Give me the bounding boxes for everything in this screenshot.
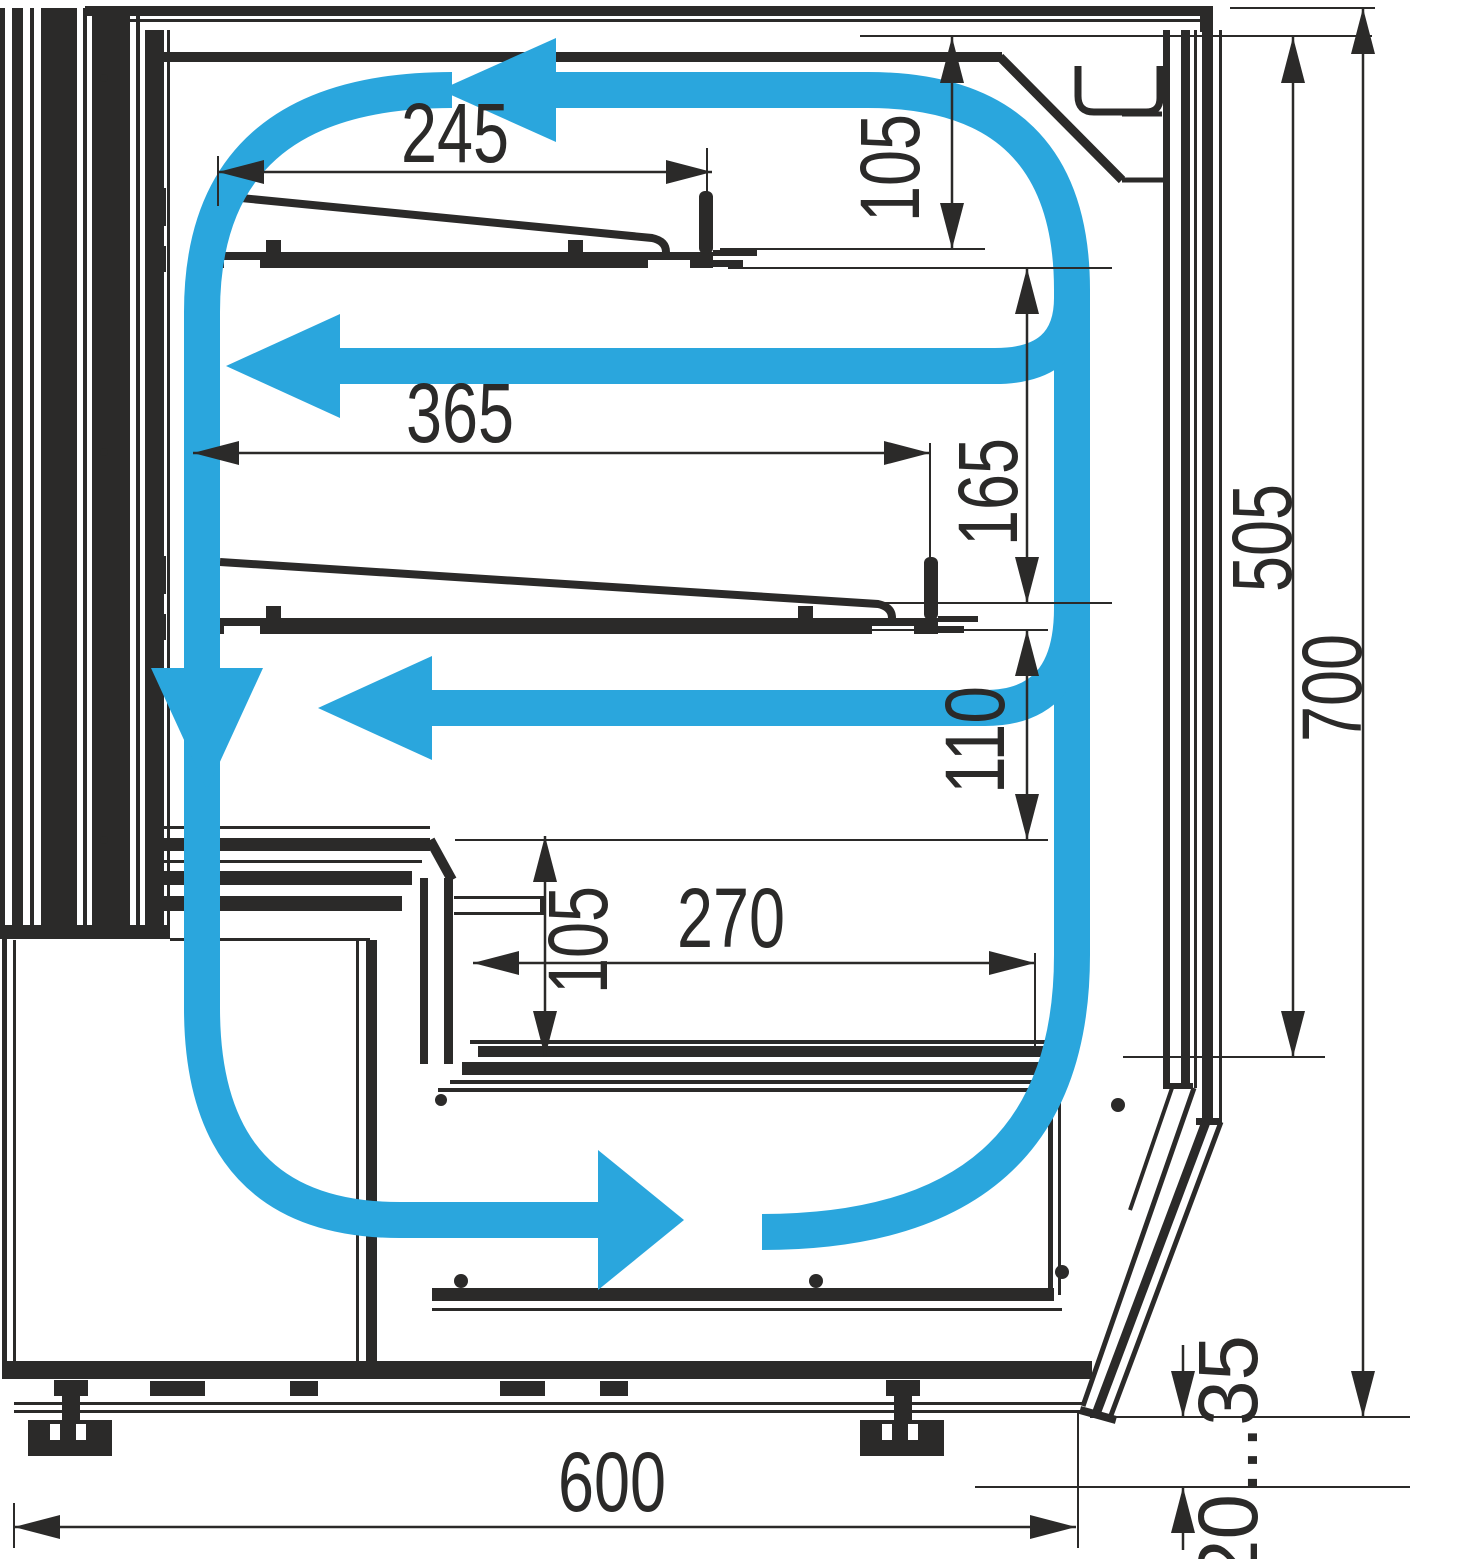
airflow-arrow-well-icon xyxy=(598,1150,684,1290)
airflow-arrow-middle-icon xyxy=(226,314,340,418)
dimension-label-110: 110 xyxy=(928,686,1022,794)
airflow xyxy=(151,38,1072,1290)
case-cross-section-diagram: 245 105 365 165 110 505 700 105 270 600 … xyxy=(0,0,1468,1559)
airflow-arrow-lower-icon xyxy=(318,656,432,760)
dimension-labels: 245 105 365 165 110 505 700 105 270 600 … xyxy=(401,86,1379,1559)
dimension-label-505: 505 xyxy=(1215,484,1309,592)
rear-wall xyxy=(0,8,170,939)
airflow-branch-middle xyxy=(340,298,1072,366)
dimension-label-105-bottom: 105 xyxy=(531,886,625,994)
dimension-label-700: 700 xyxy=(1285,634,1379,742)
dimension-label-600: 600 xyxy=(558,1435,666,1529)
dimension-label-270: 270 xyxy=(677,871,785,965)
base-cabinet xyxy=(2,935,1092,1413)
drawing-canvas: 245 105 365 165 110 505 700 105 270 600 … xyxy=(0,0,1468,1559)
front-glass xyxy=(1163,30,1222,1125)
dimension-label-365: 365 xyxy=(406,366,514,460)
dimension-label-105-top: 105 xyxy=(843,114,937,222)
middle-shelf xyxy=(150,556,978,640)
dimension-label-20-35: 20...35 xyxy=(1181,1335,1275,1559)
lamp-channel-profile xyxy=(1078,66,1160,112)
dimension-label-245: 245 xyxy=(401,86,509,180)
dimension-label-165: 165 xyxy=(941,438,1035,546)
